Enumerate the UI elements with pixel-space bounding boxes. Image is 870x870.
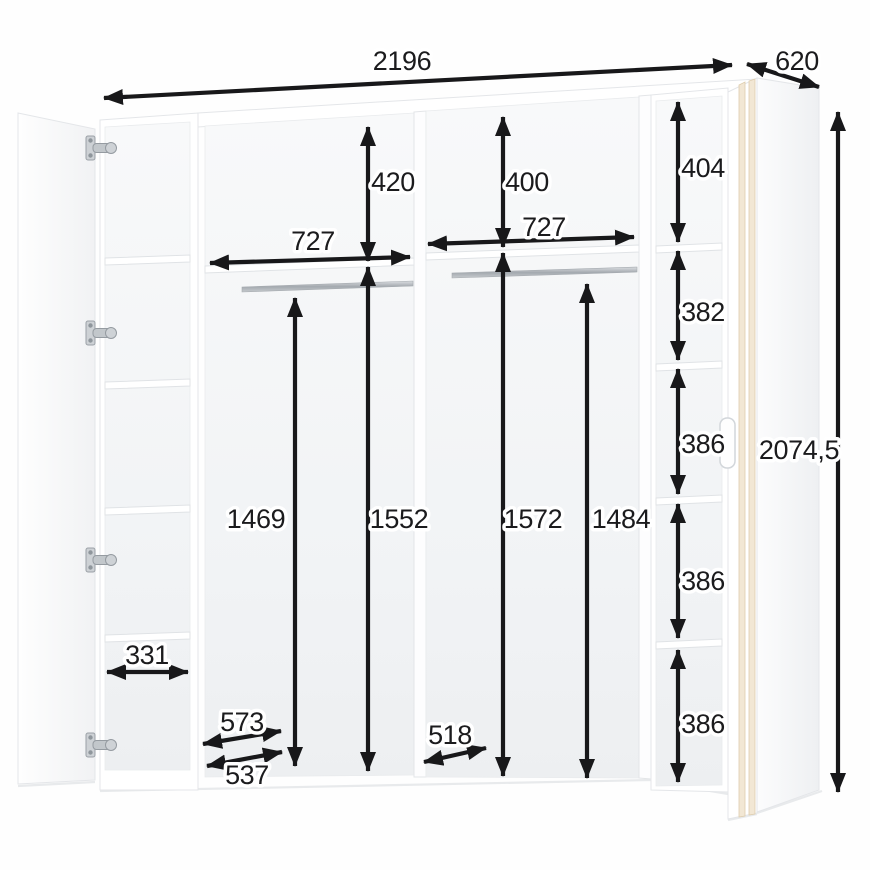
- dim-label-total-height: 2074,5: [759, 435, 839, 465]
- dim-label-comp2-width: 727: [522, 212, 566, 242]
- dim-label-comp1-inner-height: 1552: [370, 504, 428, 534]
- dim-label-side-cubby-4: 386: [681, 566, 725, 596]
- diagram-canvas: 2196 620 2074,5 420 727 400 727: [0, 0, 870, 870]
- compartment-2-interior: [426, 97, 639, 778]
- dim-label-side-cubby-3: 386: [681, 429, 725, 459]
- dim-label-depth-upper-shelf: 573: [220, 707, 264, 737]
- dim-label-left-shelf-width: 331: [125, 640, 169, 670]
- divider-panel: [639, 95, 651, 779]
- dim-label-comp2-inner-height: 1572: [504, 504, 562, 534]
- dim-label-comp1-width: 727: [291, 226, 335, 256]
- divider-panel: [414, 111, 426, 777]
- door-edge-wood-strip: [749, 79, 755, 815]
- dim-label-comp2-top-height: 400: [505, 167, 549, 197]
- dim-label-total-depth: 620: [775, 46, 819, 76]
- dim-label-depth-lower-shelf: 537: [225, 760, 269, 790]
- hanging-compartment-2: [426, 97, 639, 778]
- dim-label-comp2-rail-height: 1484: [592, 504, 651, 534]
- dim-label-side-cubby-2: 382: [681, 297, 725, 327]
- compartment-1-interior: [205, 113, 414, 777]
- dim-label-side-cubby-1: 404: [681, 153, 725, 183]
- dim-label-comp1-rail-height: 1469: [227, 504, 285, 534]
- wardrobe-dimension-diagram: 2196 620 2074,5 420 727 400 727: [0, 0, 870, 870]
- left-shelf-column: [100, 113, 198, 790]
- dim-label-depth-mid-shelf: 518: [428, 720, 472, 750]
- hanging-compartment-1: [205, 113, 414, 777]
- dim-label-total-width: 2196: [373, 46, 431, 76]
- left-door-panel: [18, 113, 95, 784]
- dim-label-comp1-top-height: 420: [371, 167, 415, 197]
- dim-label-side-cubby-5: 386: [681, 709, 725, 739]
- door-edge-wood-strip: [739, 82, 745, 817]
